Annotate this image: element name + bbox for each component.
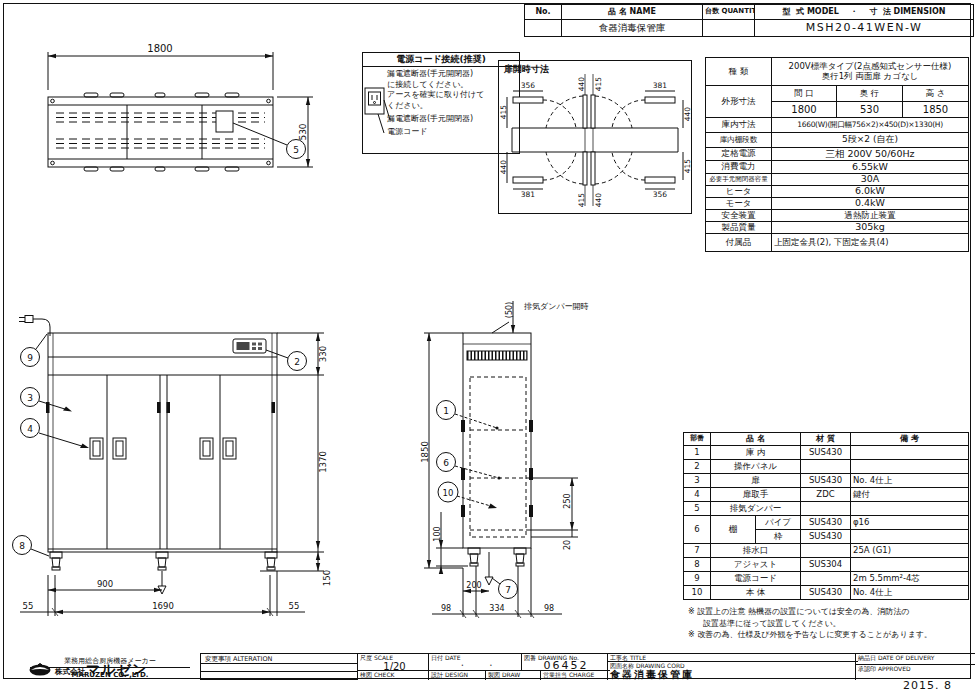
notes: ※ 設置上の注意 熱機器の設置については安全の為、消防法の 設置基準に従って設置… — [688, 606, 970, 641]
design-cell: 設計 DESIGN — [428, 670, 488, 680]
drawing-sheet: No. 品 名 NAME 台数 QUANTITY 型 式 MODEL ・ 寸 法… — [0, 0, 975, 692]
company-en: MARUZEN CO. ,LTD. — [40, 671, 180, 679]
door-open-title: 扉開時寸法 — [499, 61, 691, 76]
draw-cell: 製図 DRAW — [485, 670, 543, 680]
spec-consumption-value: 6.55kW — [772, 161, 969, 174]
header-name-value: 食器消毒保管庫 — [562, 20, 703, 37]
spec-shelf-value: 5段×2 (自在) — [772, 133, 969, 148]
header-name-label: 品 名 NAME — [562, 5, 703, 20]
date-value: ・ ・ — [428, 661, 524, 670]
parts-row-8: 8アジャスト SUS304 — [684, 558, 969, 572]
spec-outer-label: 外形寸法 — [706, 86, 772, 118]
power-box-title: 電源コード接続(推奨) — [363, 53, 519, 67]
issue-date: 2015. 8 — [903, 679, 952, 692]
parts-col-no: 部番 — [684, 433, 711, 446]
approved-cell: 承認印 APPROVED — [855, 664, 975, 680]
parts-table: 部番 品 名 材 質 備 考 1庫 内 SUS430 2操作パネル 3扉 SUS… — [683, 432, 969, 600]
parts-row-4: 4扉取手 ZDC鍵付 — [684, 488, 969, 502]
spec-outer-col1: 間 口 — [772, 86, 837, 102]
spec-outer-val3: 1850 — [903, 102, 969, 118]
spec-heater-value: 6.0kW — [772, 186, 969, 198]
parts-row-2: 2操作パネル — [684, 460, 969, 474]
spec-outer-col2: 奥 行 — [837, 86, 903, 102]
spec-outer-val2: 530 — [837, 102, 903, 118]
note-line-3: ※ 改善の為、仕様及び外観を予告なしに変更することがあります。 — [688, 629, 970, 641]
scale-value: 1/20 — [357, 661, 431, 670]
spec-power-value: 三相 200V 50/60Hz — [772, 148, 969, 161]
spec-kind-label: 種 類 — [706, 58, 772, 86]
note-line-1: ※ 設置上の注意 熱機器の設置については安全の為、消防法の — [688, 606, 970, 618]
drawing-name-value: 食器消毒保管庫 — [610, 669, 856, 681]
header-model-value: MSH20-41WEN-W — [755, 20, 974, 37]
drawing-name-label: 図面名称 DRAWING CORD — [610, 662, 856, 669]
spec-safety-value: 過熱防止装置 — [772, 210, 969, 222]
parts-col-material: 材 質 — [801, 433, 851, 446]
parts-row-9: 9電源コード 2m 5.5mm²-4芯 — [684, 572, 969, 586]
spec-table: 種 類 200V標準タイプ(2点感知式センサー仕様) 奥行1列 両面扉 カゴなし… — [705, 57, 969, 252]
spec-accessory-label: 付属品 — [706, 234, 772, 252]
power-connection-note: 電源コード接続(推奨) 漏電遮断器(手元開閉器) に接続してください。 アースを… — [362, 52, 520, 154]
parts-col-note: 備 考 — [851, 433, 969, 446]
header-model-label: 型 式 MODEL ・ 寸 法 DIMENSION — [755, 5, 974, 20]
parts-row-3: 3扉 SUS430No. 4仕上 — [684, 474, 969, 488]
parts-row-5: 5排気ダンパー — [684, 502, 969, 516]
spec-kind-value: 200V標準タイプ(2点感知式センサー仕様) 奥行1列 両面扉 カゴなし — [772, 58, 969, 86]
charge-cell: 営業担当 CHARGE — [540, 670, 610, 680]
spec-outer-val1: 1800 — [772, 102, 837, 118]
spec-weight-label: 製品質量 — [706, 222, 772, 234]
parts-row-10: 10本 体 SUS430No. 4仕上 — [684, 586, 969, 600]
spec-outer-col3: 高 さ — [903, 86, 969, 102]
spec-breaker-label: 必要手元開閉器容量 — [706, 174, 772, 186]
door-open-diagram-box: 扉開時寸法 — [498, 60, 692, 214]
spec-consumption-label: 消費電力 — [706, 161, 772, 174]
check-cell: 検図 CHECK — [357, 670, 431, 680]
note-line-2: 設置基準に従って設置してください。 — [688, 618, 970, 630]
spec-motor-value: 0.4kW — [772, 198, 969, 210]
spec-inner-value: 1660(W)(開口幅756×2)×450(D)×1330(H) — [772, 118, 969, 133]
drawing-no-value: 06452 — [521, 661, 610, 670]
header-qty-label: 台数 QUANTITY — [703, 5, 755, 20]
drawing-name-cell: 図面名称 DRAWING CORD 食器消毒保管庫 — [607, 661, 858, 680]
parts-row-1: 1庫 内 SUS430 — [684, 446, 969, 460]
parts-row-6a: 6棚 パイプSUS430 φ16 — [684, 516, 969, 530]
spec-heater-label: ヒータ — [706, 186, 772, 198]
spec-safety-label: 安全装置 — [706, 210, 772, 222]
spec-motor-label: モータ — [706, 198, 772, 210]
spec-breaker-value: 30A — [772, 174, 969, 186]
alteration-block: 変更事項 ALTERATION — [200, 653, 358, 680]
spec-accessory-value: 上固定金具(2), 下固定金具(4) — [772, 234, 969, 252]
spec-inner-label: 庫内寸法 — [706, 118, 772, 133]
spec-shelf-label: 庫内棚段数 — [706, 133, 772, 148]
parts-col-name: 品 名 — [711, 433, 801, 446]
header-no-label: No. — [525, 5, 562, 20]
spec-power-label: 定格電源 — [706, 148, 772, 161]
header-no-value — [525, 20, 562, 37]
spec-weight-value: 305kg — [772, 222, 969, 234]
header-qty-value — [703, 20, 755, 37]
parts-row-7: 7排水口 25A (G1) — [684, 544, 969, 558]
header-table: No. 品 名 NAME 台数 QUANTITY 型 式 MODEL ・ 寸 法… — [524, 4, 974, 37]
